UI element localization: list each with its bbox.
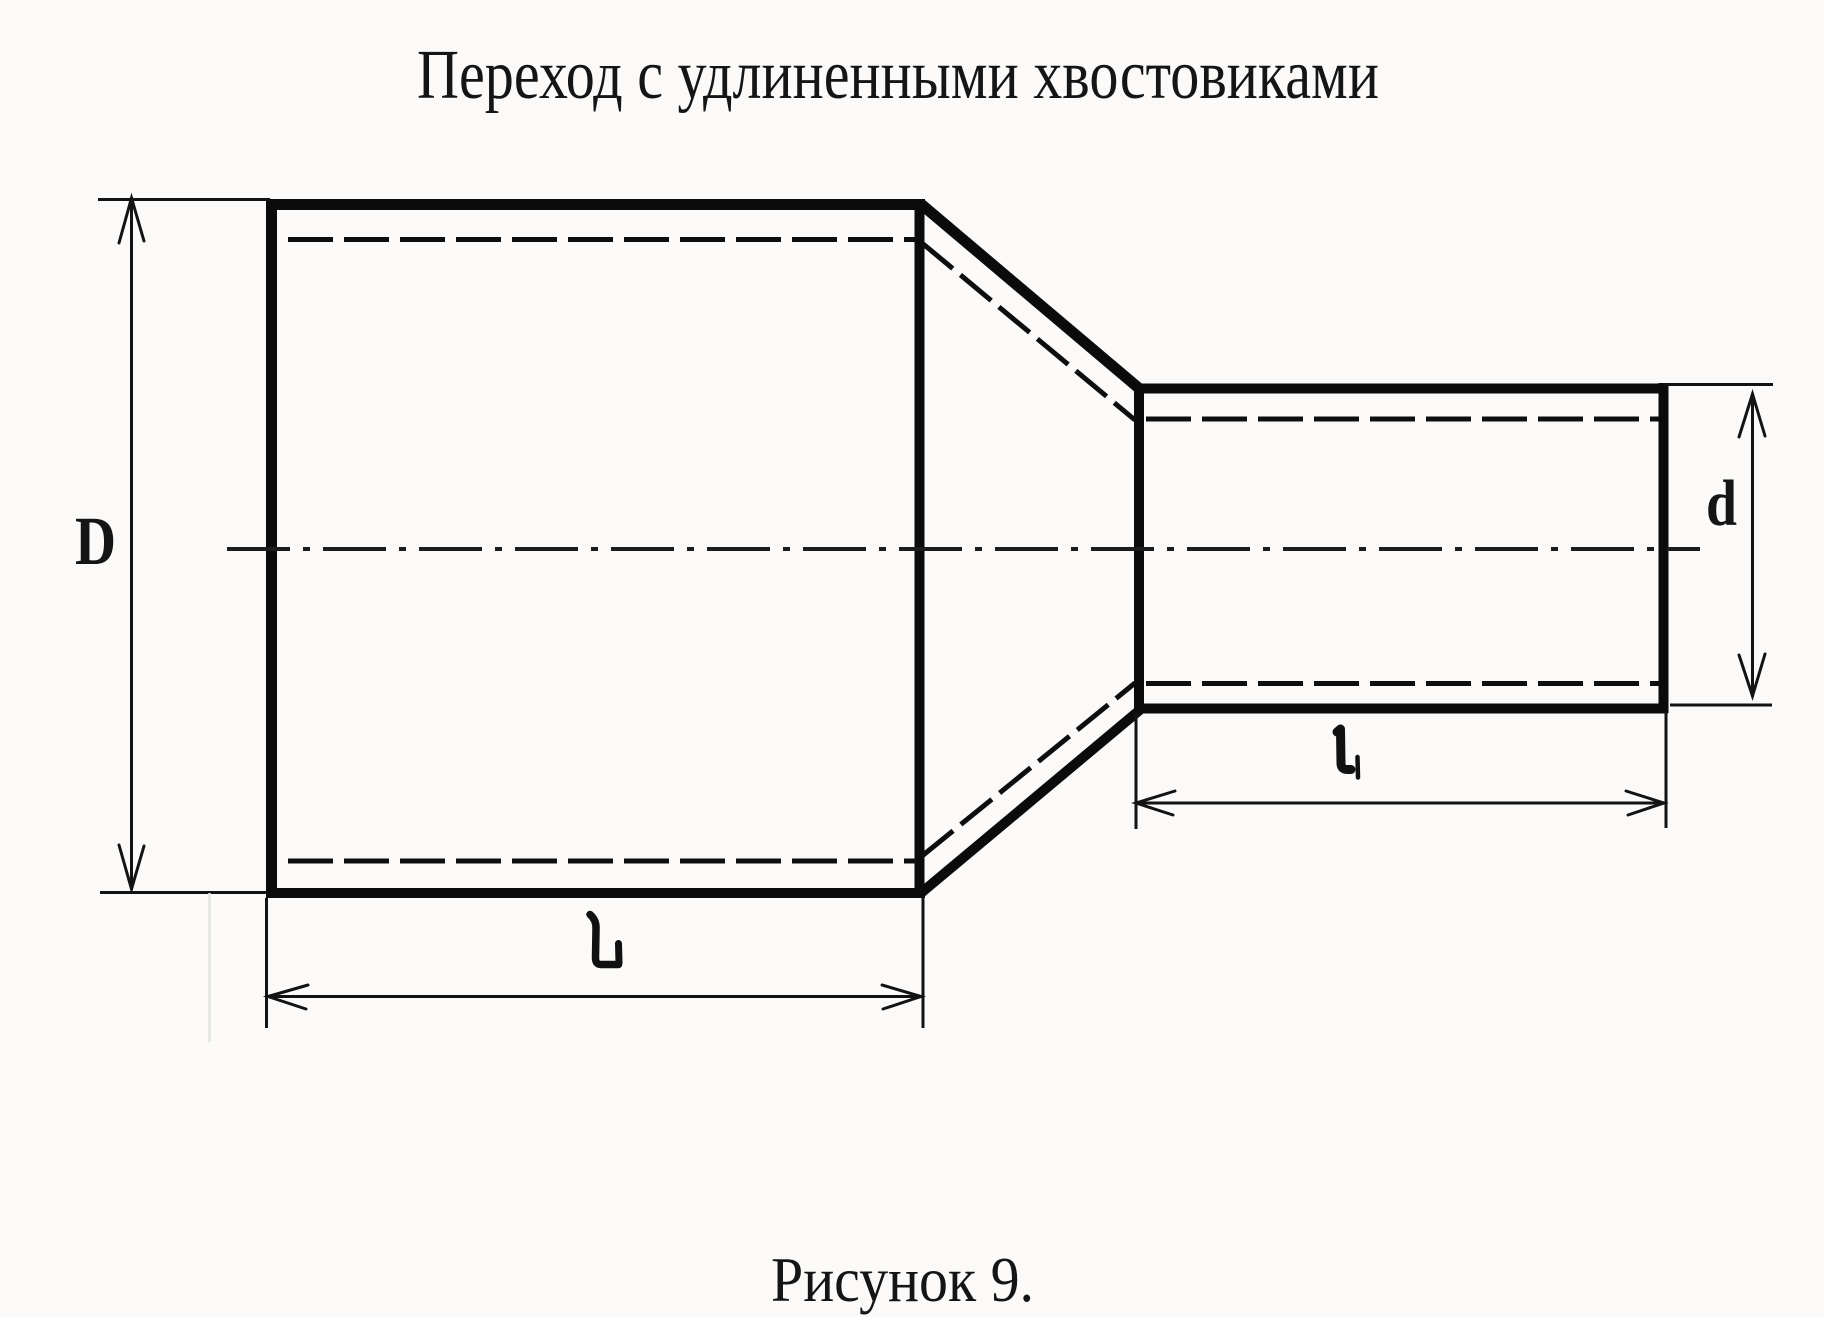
svg-text:Переход с удлиненными хвостови: Переход с удлиненными хвостовиками bbox=[417, 36, 1379, 113]
svg-text:d: d bbox=[1706, 467, 1737, 540]
svg-text:Рисунок 9.: Рисунок 9. bbox=[771, 1244, 1034, 1315]
svg-text:D: D bbox=[75, 503, 116, 579]
